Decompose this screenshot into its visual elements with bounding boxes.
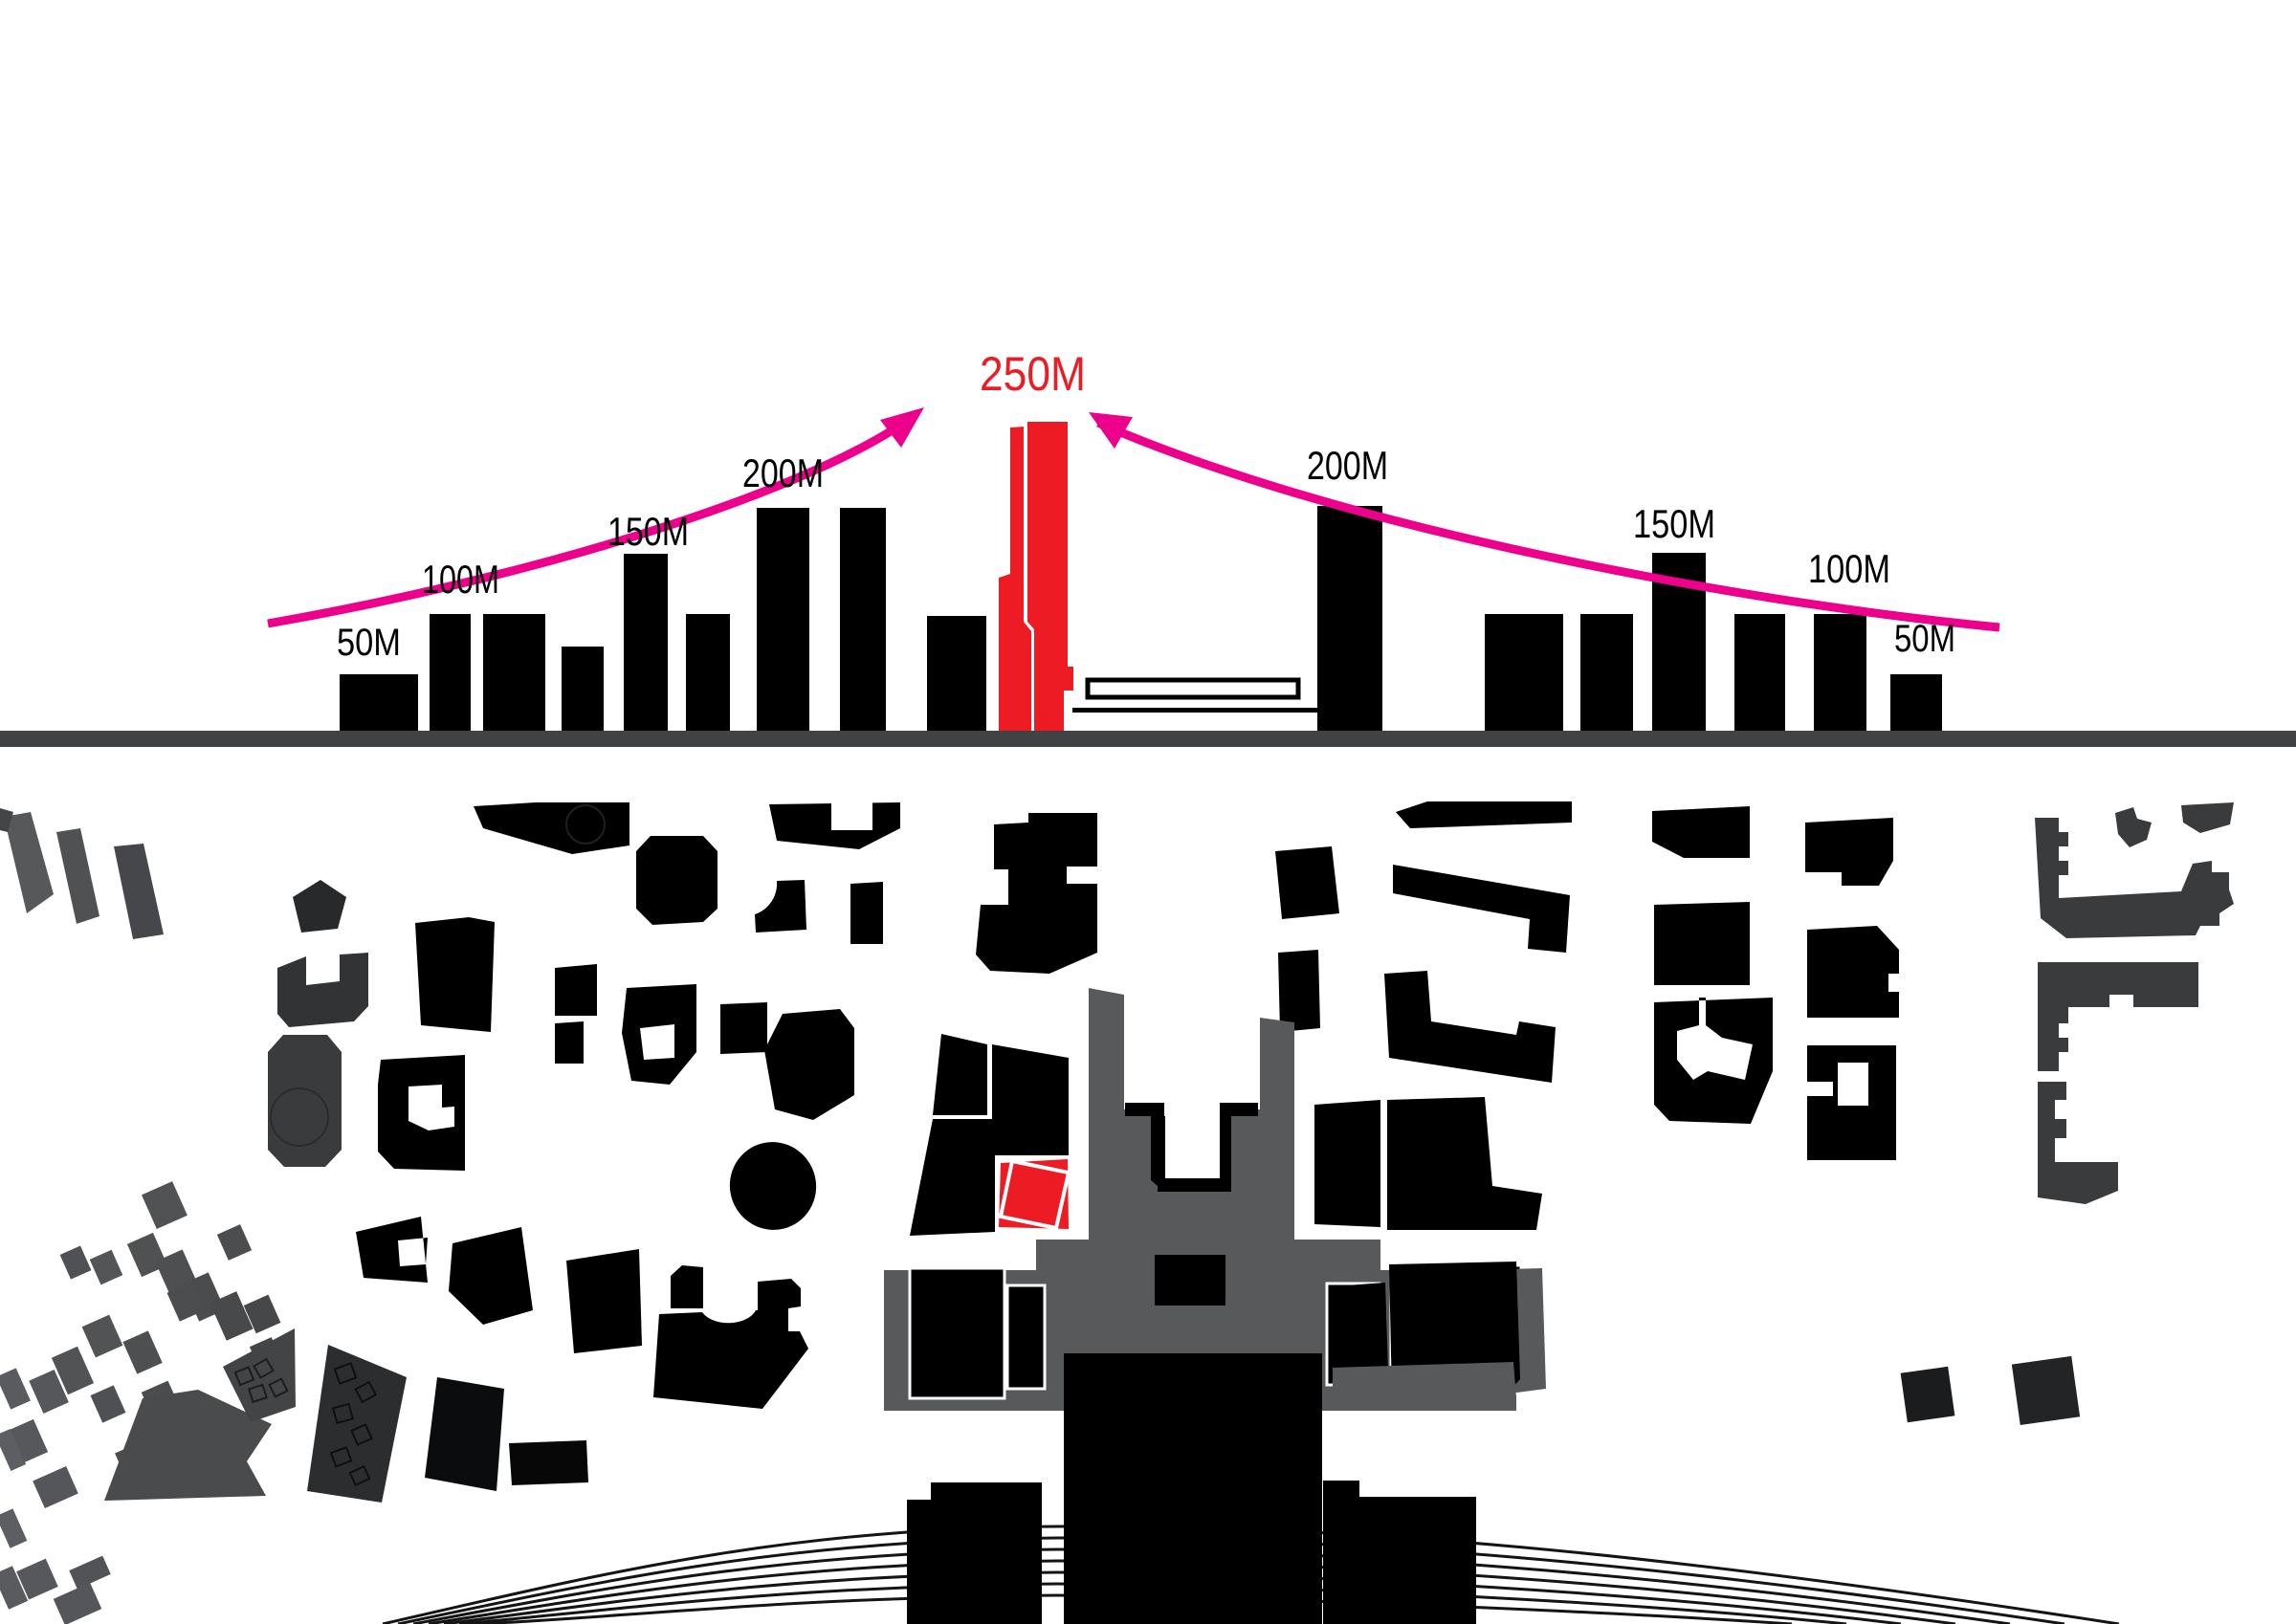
- svg-text:200M: 200M: [742, 450, 824, 495]
- svg-text:150M: 150M: [607, 509, 689, 554]
- svg-text:50M: 50M: [1894, 618, 1955, 660]
- svg-text:100M: 100M: [1808, 546, 1890, 591]
- svg-text:200M: 200M: [1307, 443, 1388, 488]
- svg-text:250M: 250M: [980, 347, 1086, 401]
- svg-text:150M: 150M: [1633, 501, 1715, 546]
- svg-text:50M: 50M: [337, 622, 401, 664]
- svg-text:100M: 100M: [422, 557, 499, 602]
